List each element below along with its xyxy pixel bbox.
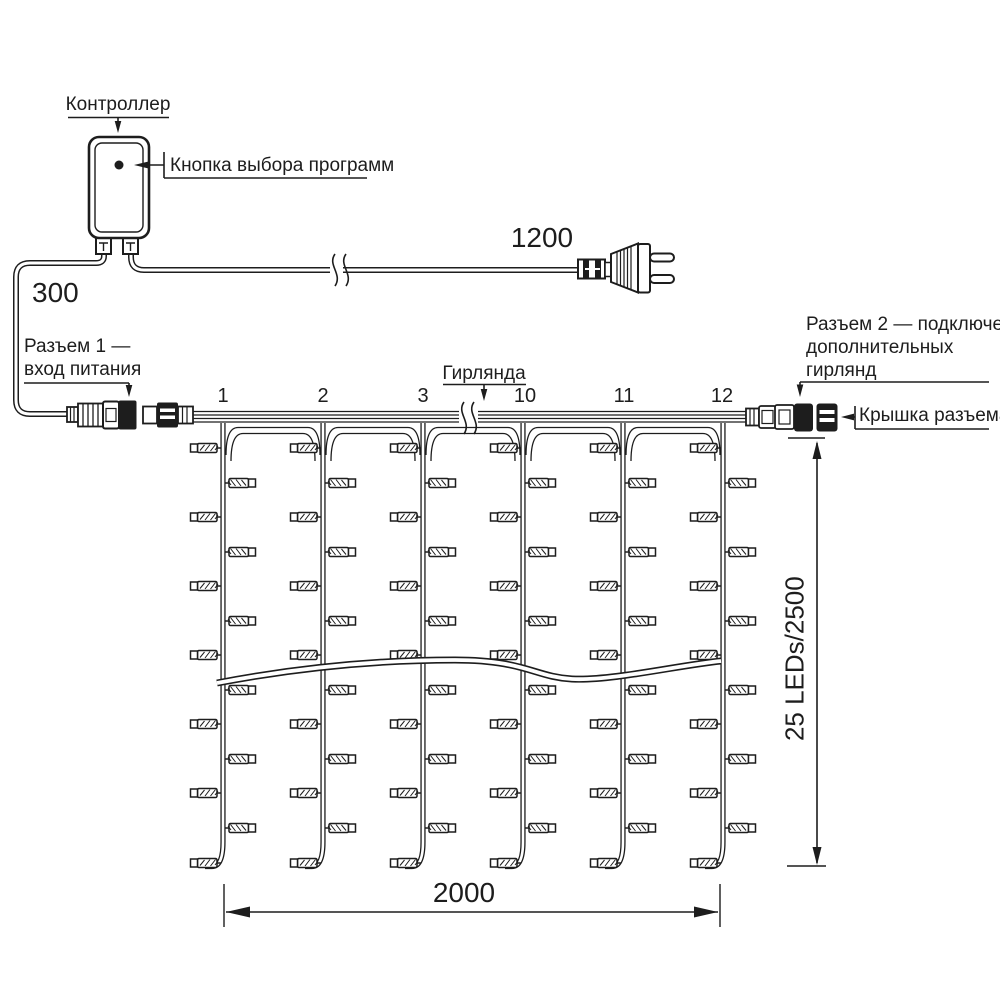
led-bulb [191,859,222,868]
led-bulb [725,824,756,833]
led-bulb [291,859,322,868]
string-number-12: 12 [704,386,740,407]
controller-leader [68,118,169,134]
connector2-label-line2: дополнительных [806,338,953,358]
led-bulb [491,859,522,868]
string-wire [205,423,223,867]
led-bulb [191,720,222,729]
led-bulb [525,479,556,488]
string-wire [605,423,623,867]
string-wire [305,423,323,867]
led-bulb [591,513,622,522]
led-bulb [625,617,656,626]
led-bulb [225,617,256,626]
string-number-1: 1 [205,386,241,407]
string-wire-core [305,423,323,867]
led-bulb [625,824,656,833]
connector-2 [746,404,838,432]
led-bulb [191,651,222,660]
led-bulb [591,582,622,591]
led-bulb [225,548,256,557]
string-number-10: 10 [507,386,543,407]
led-bulb [291,444,322,453]
led-bulb [625,479,656,488]
led-bulb [725,755,756,764]
led-bulb [691,859,722,868]
connector2-label-line1: Разъем 2 — подключение [806,315,1000,335]
string-wire-core [605,423,623,867]
led-bulb [725,686,756,695]
string-number-2: 2 [305,386,341,407]
connector-1 [67,401,193,430]
led-bulb [225,479,256,488]
led-bulb [725,617,756,626]
power-plug [578,244,674,293]
led-bulb [625,755,656,764]
string-number-3: 3 [405,386,441,407]
led-bulb [491,444,522,453]
string-wire [405,423,423,867]
led-bulb [325,824,356,833]
led-bulb [391,582,422,591]
led-bulb [225,686,256,695]
led-bulb [591,789,622,798]
string-wire-core [505,423,523,867]
connector-cap [817,404,838,432]
connector1-label-line2: вход питания [24,360,141,380]
led-bulb [725,479,756,488]
led-bulb [391,720,422,729]
led-bulb [691,444,722,453]
led-bulb [525,617,556,626]
string-number-11: 11 [606,386,642,407]
led-bulb [491,720,522,729]
led-bulb [291,651,322,660]
led-bulb [491,513,522,522]
input-cable-length: 300 [32,278,79,307]
led-bulb [691,789,722,798]
led-bulb [291,720,322,729]
led-bulb [725,548,756,557]
controller-label: Контроллер [62,95,174,115]
led-bulb [291,582,322,591]
led-bulb [591,444,622,453]
led-bulb [491,582,522,591]
connector1-label-line1: Разъем 1 — [24,337,130,357]
program-button-label: Кнопка выбора программ [170,156,394,176]
led-bulb [391,789,422,798]
string-wire-core [205,423,223,867]
controller [89,137,149,254]
led-bulb [325,548,356,557]
led-bulb [191,444,222,453]
led-bulb [425,824,456,833]
led-bulb [425,686,456,695]
led-bulb [191,789,222,798]
led-bulb [425,479,456,488]
led-bulb [225,824,256,833]
led-bulb [425,755,456,764]
string-wire [505,423,523,867]
led-bulb [525,548,556,557]
led-bulb [625,548,656,557]
led-bulb [325,755,356,764]
led-bulb [625,686,656,695]
led-bulb [191,513,222,522]
width-dimension-label: 2000 [428,878,500,907]
led-bulb [691,720,722,729]
led-bulb [325,479,356,488]
connector1-leader [24,383,132,397]
connector2-leader [797,382,989,397]
led-bulb [591,720,622,729]
led-bulb [291,789,322,798]
led-bulb [525,755,556,764]
led-bulb [425,617,456,626]
led-bulb [391,444,422,453]
led-bulb [391,513,422,522]
power-cable-plug [131,252,579,286]
led-bulb [391,859,422,868]
string-wire [705,423,723,867]
led-bulb [291,513,322,522]
led-bulb [425,548,456,557]
hanging-wire [217,660,721,683]
led-bulb [491,651,522,660]
led-bulb [591,651,622,660]
led-bulb [591,859,622,868]
wiring-diagram: Контроллер Кнопка выбора программ 300 12… [0,0,1000,1000]
plug-cable-length: 1200 [508,223,576,252]
connector2-label-line3: гирлянд [806,361,876,381]
height-dimension-label: 25 LEDs/2500 [781,534,808,784]
led-bulb [191,582,222,591]
curtain-strings [191,423,756,868]
program-button-dot [115,161,124,170]
led-bulb [325,617,356,626]
top-bus-wire [193,402,746,434]
led-bulb [325,686,356,695]
string-wire-core [705,423,723,867]
led-bulb [225,755,256,764]
led-bulb [525,686,556,695]
led-bulb [525,824,556,833]
garland-label: Гирлянда [442,364,526,384]
diagram-linework [0,0,1000,1000]
led-bulb [691,513,722,522]
connector-cap-label: Крышка разъема [859,406,1000,426]
string-wire-core [405,423,423,867]
led-bulb [491,789,522,798]
led-bulb [691,582,722,591]
